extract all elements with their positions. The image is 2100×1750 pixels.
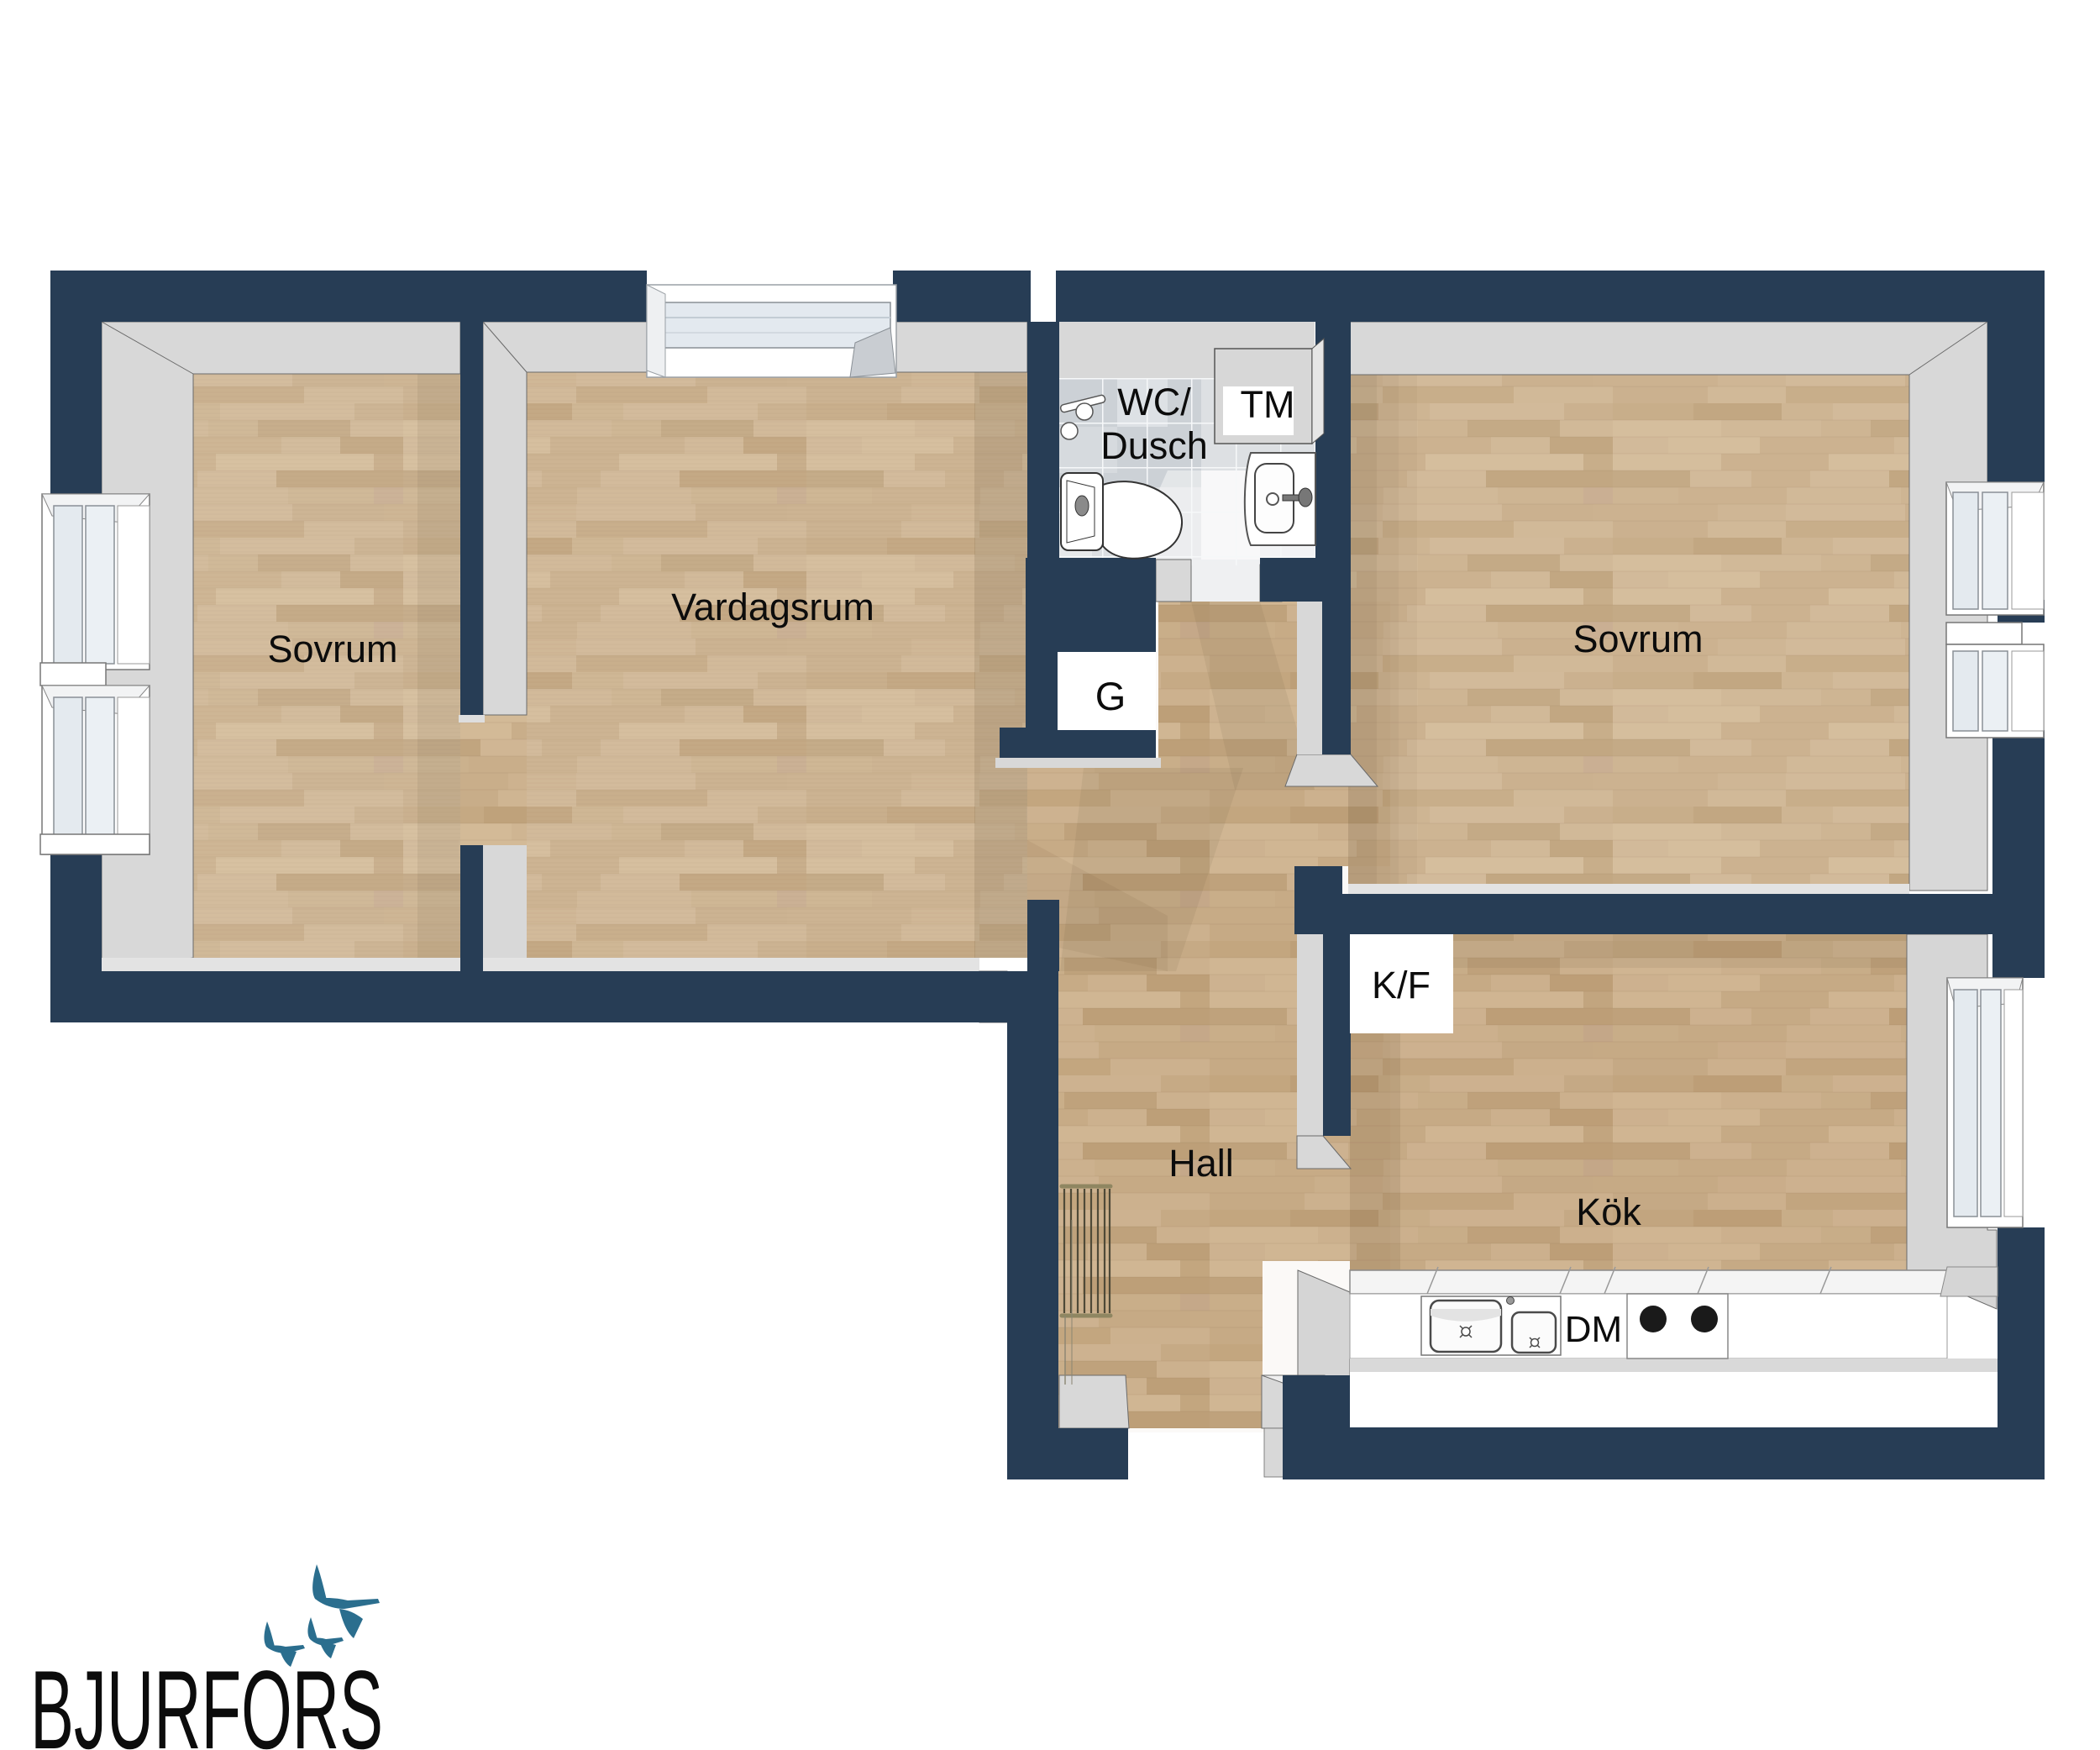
svg-text:TM: TM	[1241, 383, 1295, 426]
svg-text:WC/: WC/	[1117, 381, 1191, 423]
svg-text:G: G	[1095, 674, 1126, 718]
svg-text:Hall: Hall	[1168, 1142, 1234, 1185]
svg-text:Dusch: Dusch	[1100, 424, 1208, 467]
svg-text:BJURFORS: BJURFORS	[30, 1648, 383, 1750]
svg-text:K/F: K/F	[1372, 964, 1431, 1006]
svg-text:Kök: Kök	[1576, 1190, 1641, 1233]
svg-text:Sovrum: Sovrum	[1572, 617, 1703, 660]
svg-text:Vardagsrum: Vardagsrum	[671, 586, 874, 628]
svg-text:DM: DM	[1565, 1309, 1622, 1350]
svg-text:Sovrum: Sovrum	[267, 628, 397, 670]
